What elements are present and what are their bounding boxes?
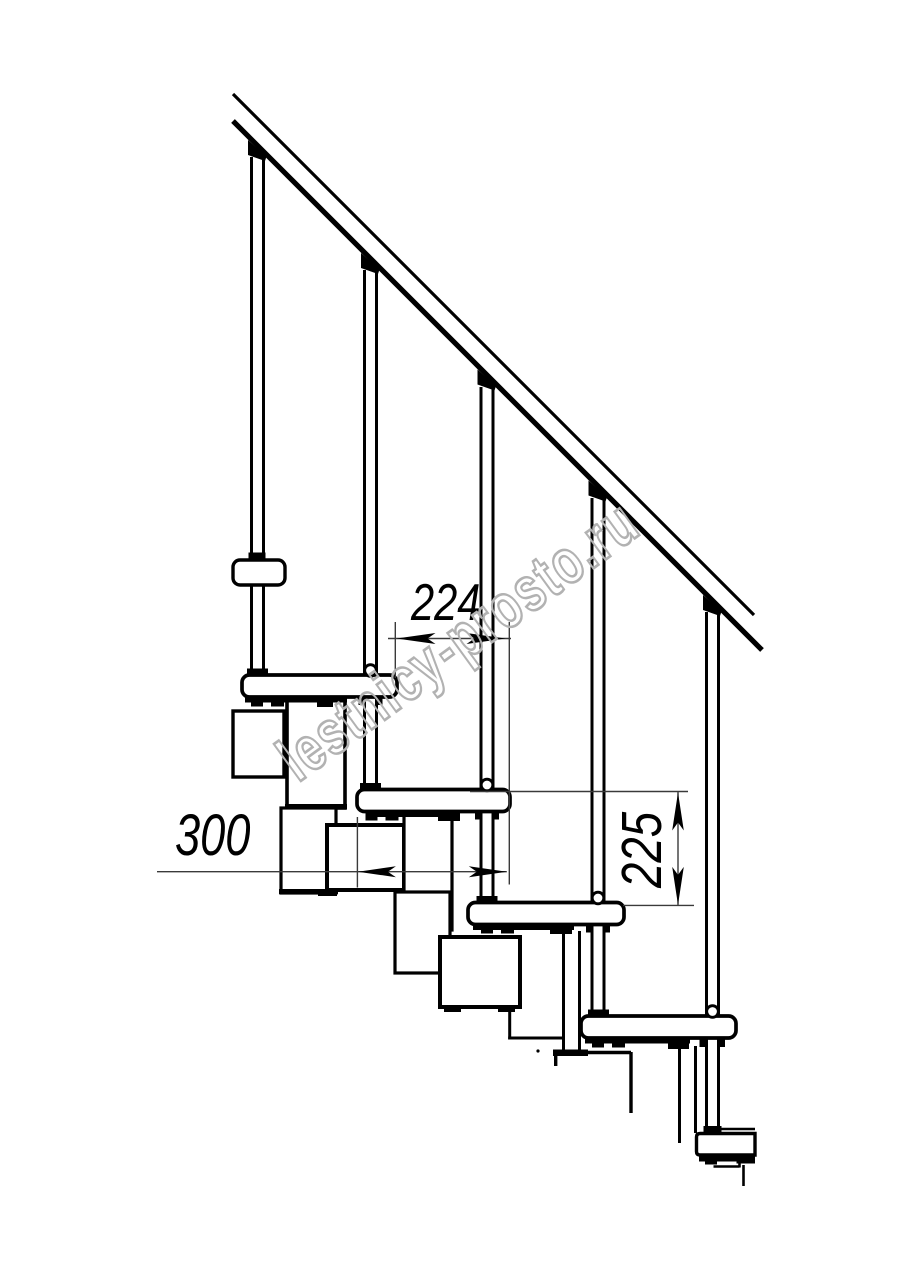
svg-text:225: 225 [609, 812, 673, 889]
svg-text:300: 300 [175, 804, 251, 869]
